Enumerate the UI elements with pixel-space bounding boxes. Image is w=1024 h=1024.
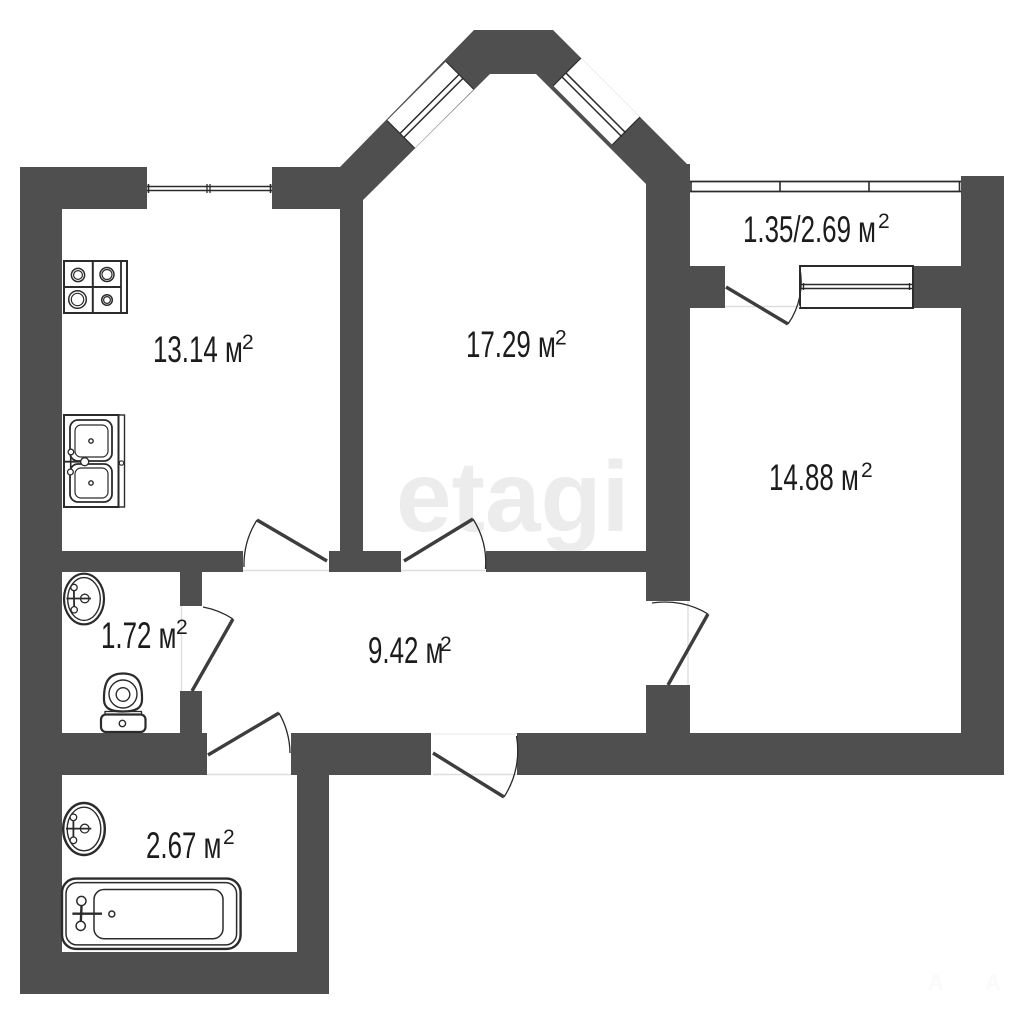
svg-text:1.35/2.69 м: 1.35/2.69 м <box>743 208 876 250</box>
svg-text:2: 2 <box>555 327 567 350</box>
svg-text:2: 2 <box>878 210 890 233</box>
svg-text:2: 2 <box>176 616 188 639</box>
svg-text:1.72 м: 1.72 м <box>101 614 176 656</box>
svg-text:etagi: etagi <box>396 441 629 553</box>
svg-text:9.42 м: 9.42 м <box>368 629 443 671</box>
svg-text:14.88 м: 14.88 м <box>769 456 859 498</box>
svg-text:A: A <box>928 970 944 995</box>
svg-text:17.29 м: 17.29 м <box>466 323 556 365</box>
svg-text:2.67 м: 2.67 м <box>146 824 221 866</box>
svg-text:2: 2 <box>861 459 873 482</box>
svg-text:13.14 м: 13.14 м <box>153 328 243 370</box>
svg-text:2: 2 <box>440 633 452 656</box>
svg-text:A: A <box>985 970 1001 995</box>
svg-text:2: 2 <box>223 826 235 849</box>
svg-text:2: 2 <box>242 331 254 354</box>
